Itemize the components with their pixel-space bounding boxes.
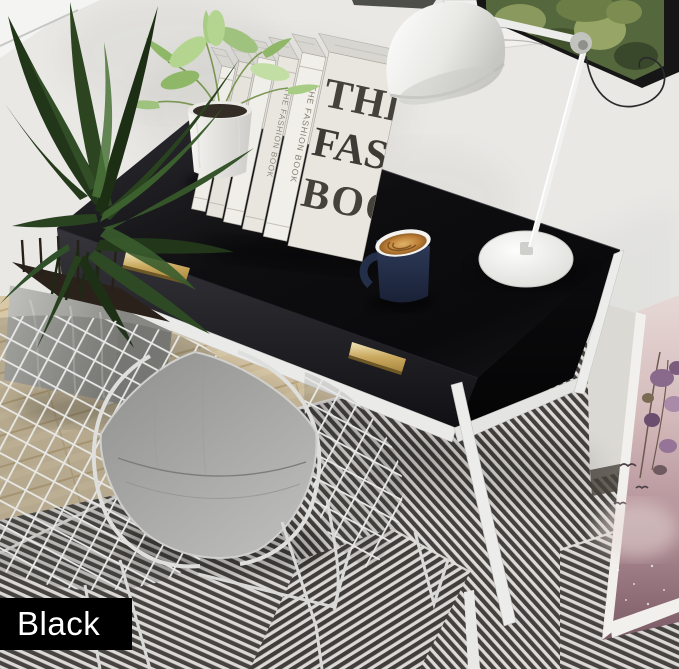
scene-canvas: THE FASHION BOOK THE FASHION BOOK THE FA… [0,0,679,669]
lamp-base [479,231,573,287]
variant-label-text: Black [17,605,100,643]
variant-label: Black [0,598,132,650]
plant-pot [188,101,252,178]
product-photo: THE FASHION BOOK THE FASHION BOOK THE FA… [0,0,679,669]
